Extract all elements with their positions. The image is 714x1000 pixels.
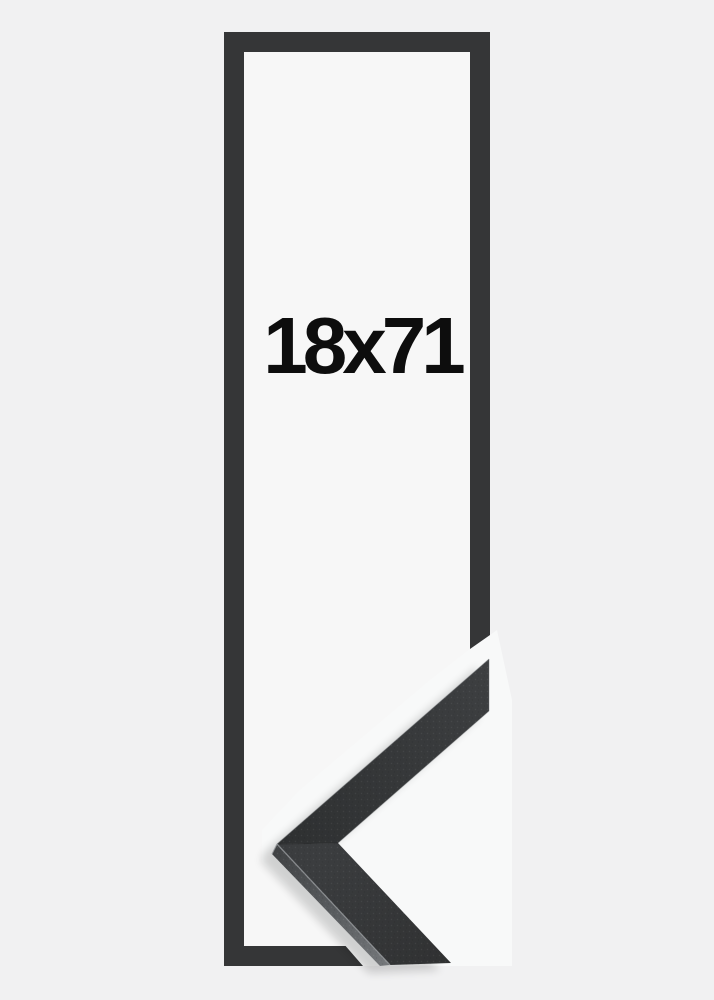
frame-outline-top-bar bbox=[224, 32, 490, 52]
frame-illustration: 18x71 bbox=[0, 0, 714, 1000]
frame-product-image: 18x71 bbox=[0, 0, 714, 1000]
frame-outline-left-bar bbox=[224, 32, 244, 966]
size-label: 18x71 bbox=[263, 301, 464, 390]
